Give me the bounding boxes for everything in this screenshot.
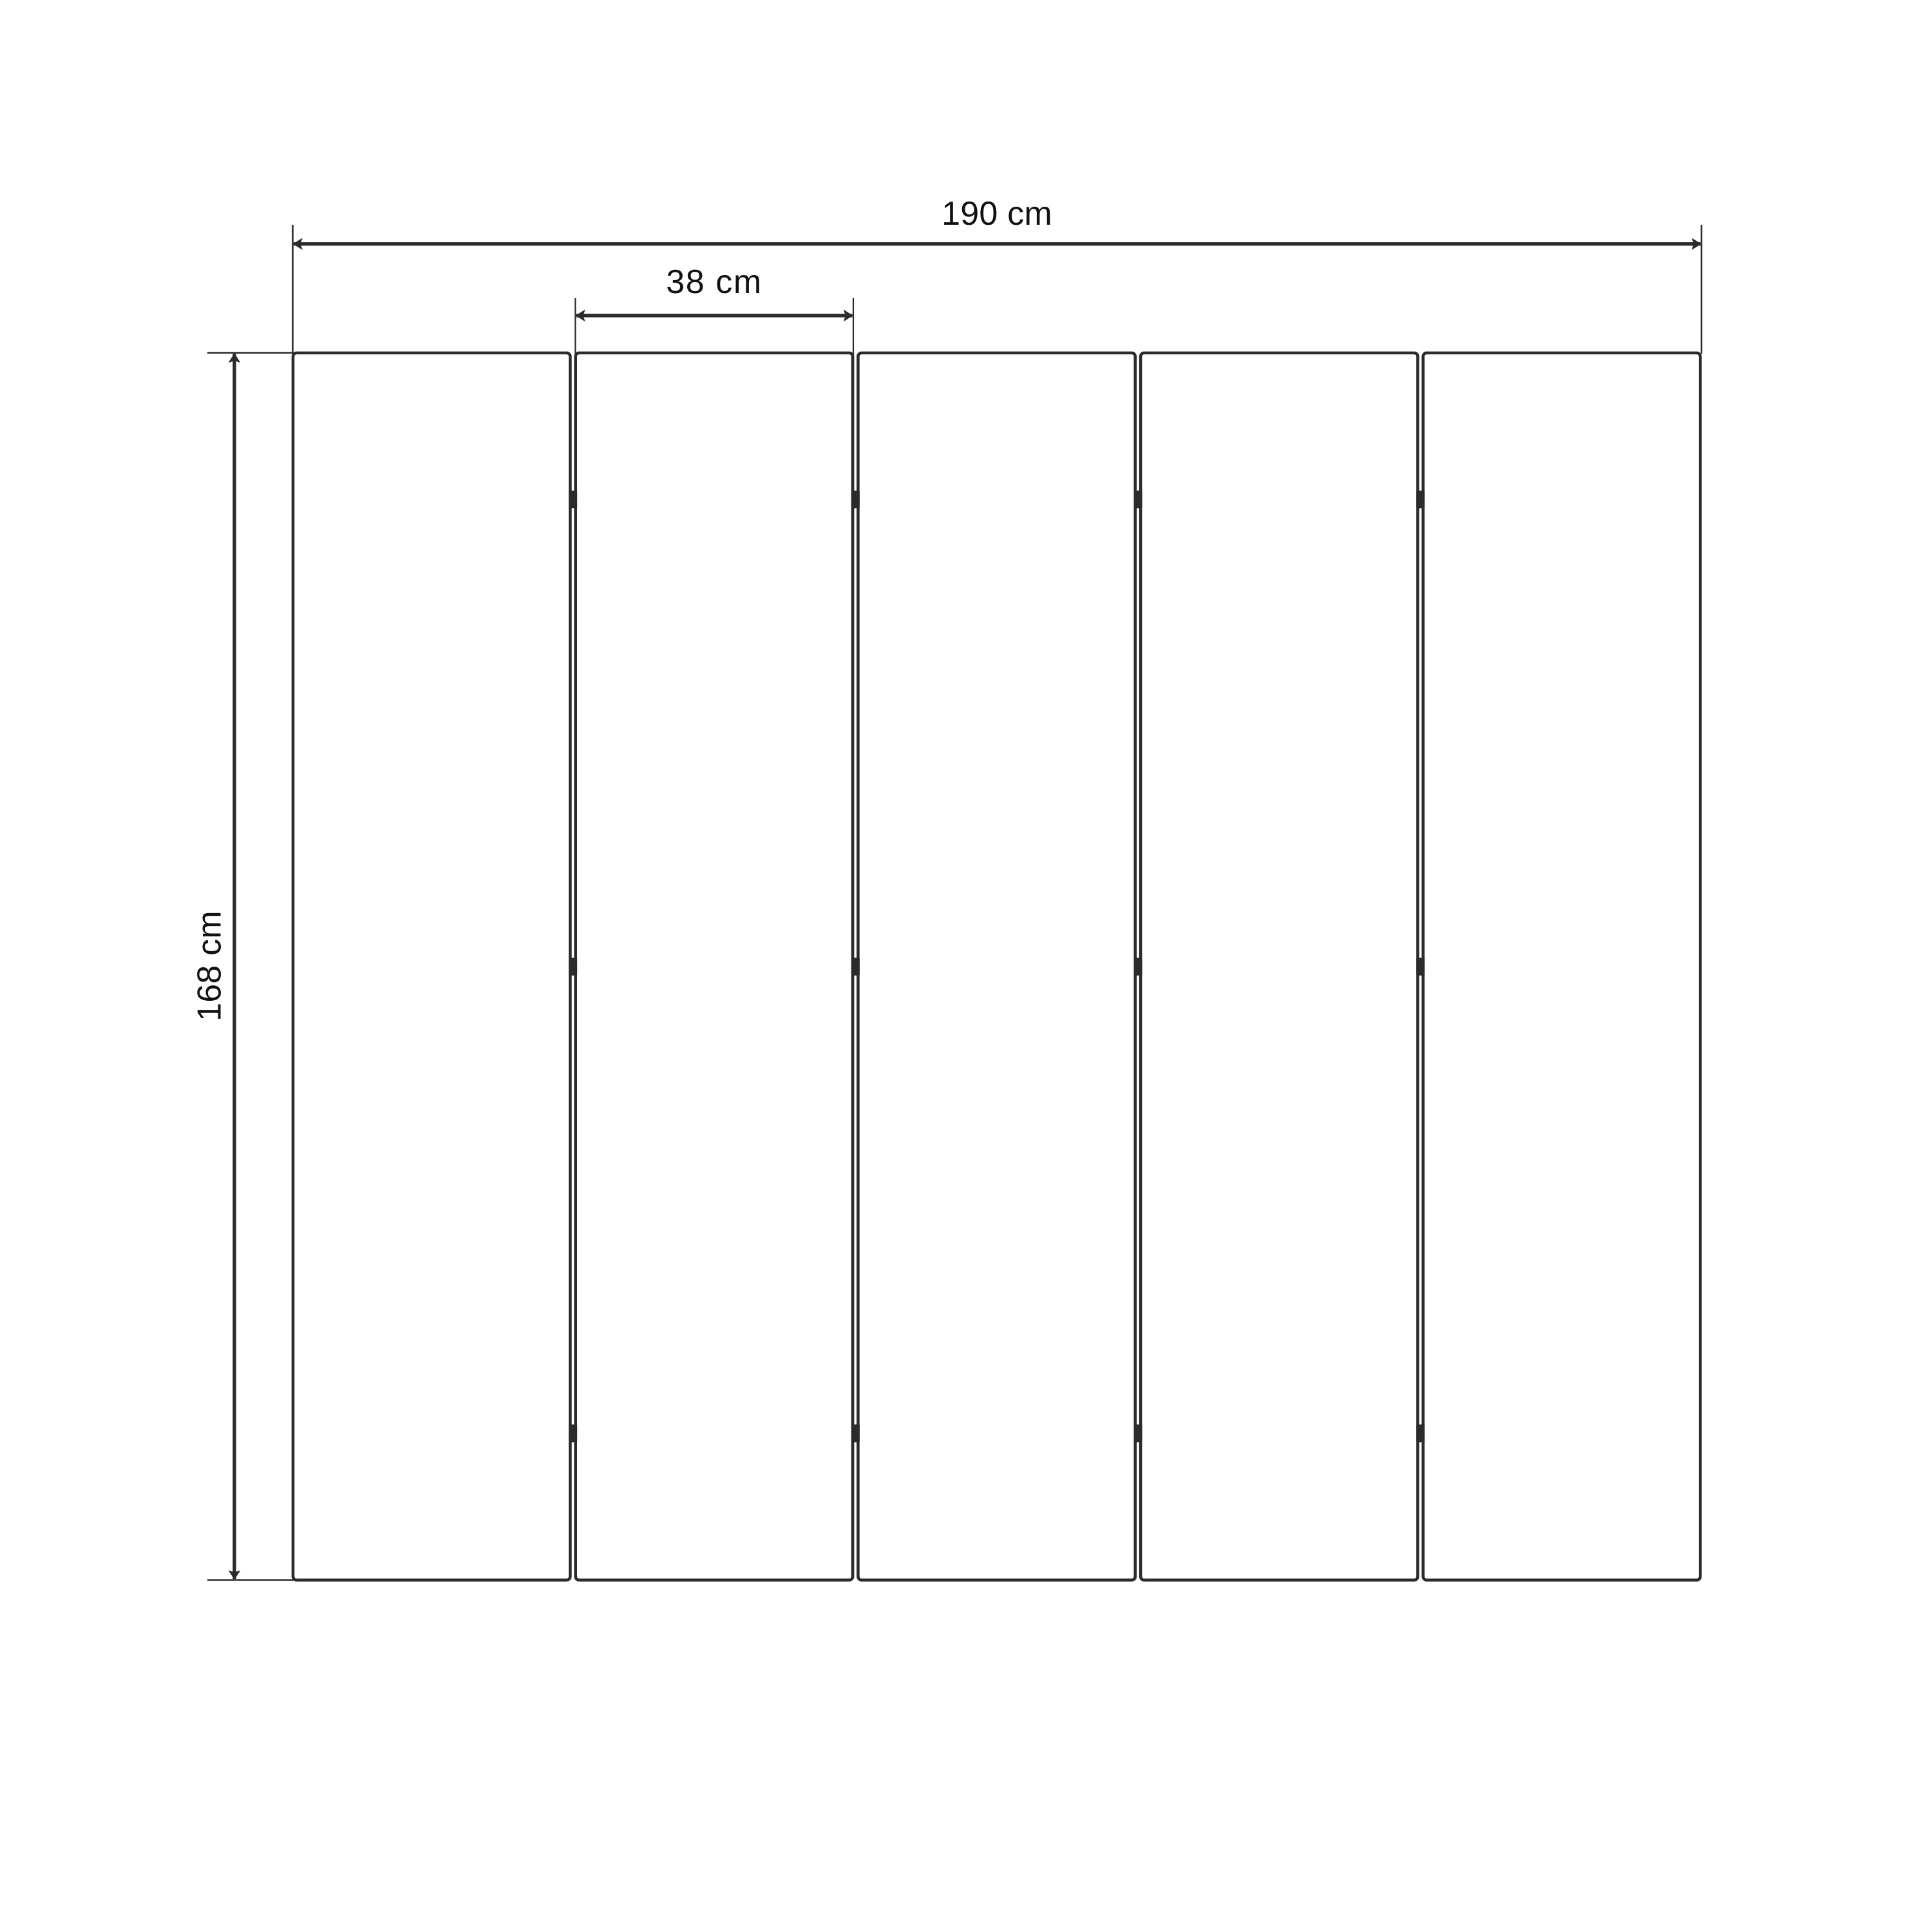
svg-text:168 cm: 168 cm	[191, 911, 229, 1021]
svg-text:190 cm: 190 cm	[942, 195, 1052, 232]
svg-text:38 cm: 38 cm	[666, 263, 762, 301]
